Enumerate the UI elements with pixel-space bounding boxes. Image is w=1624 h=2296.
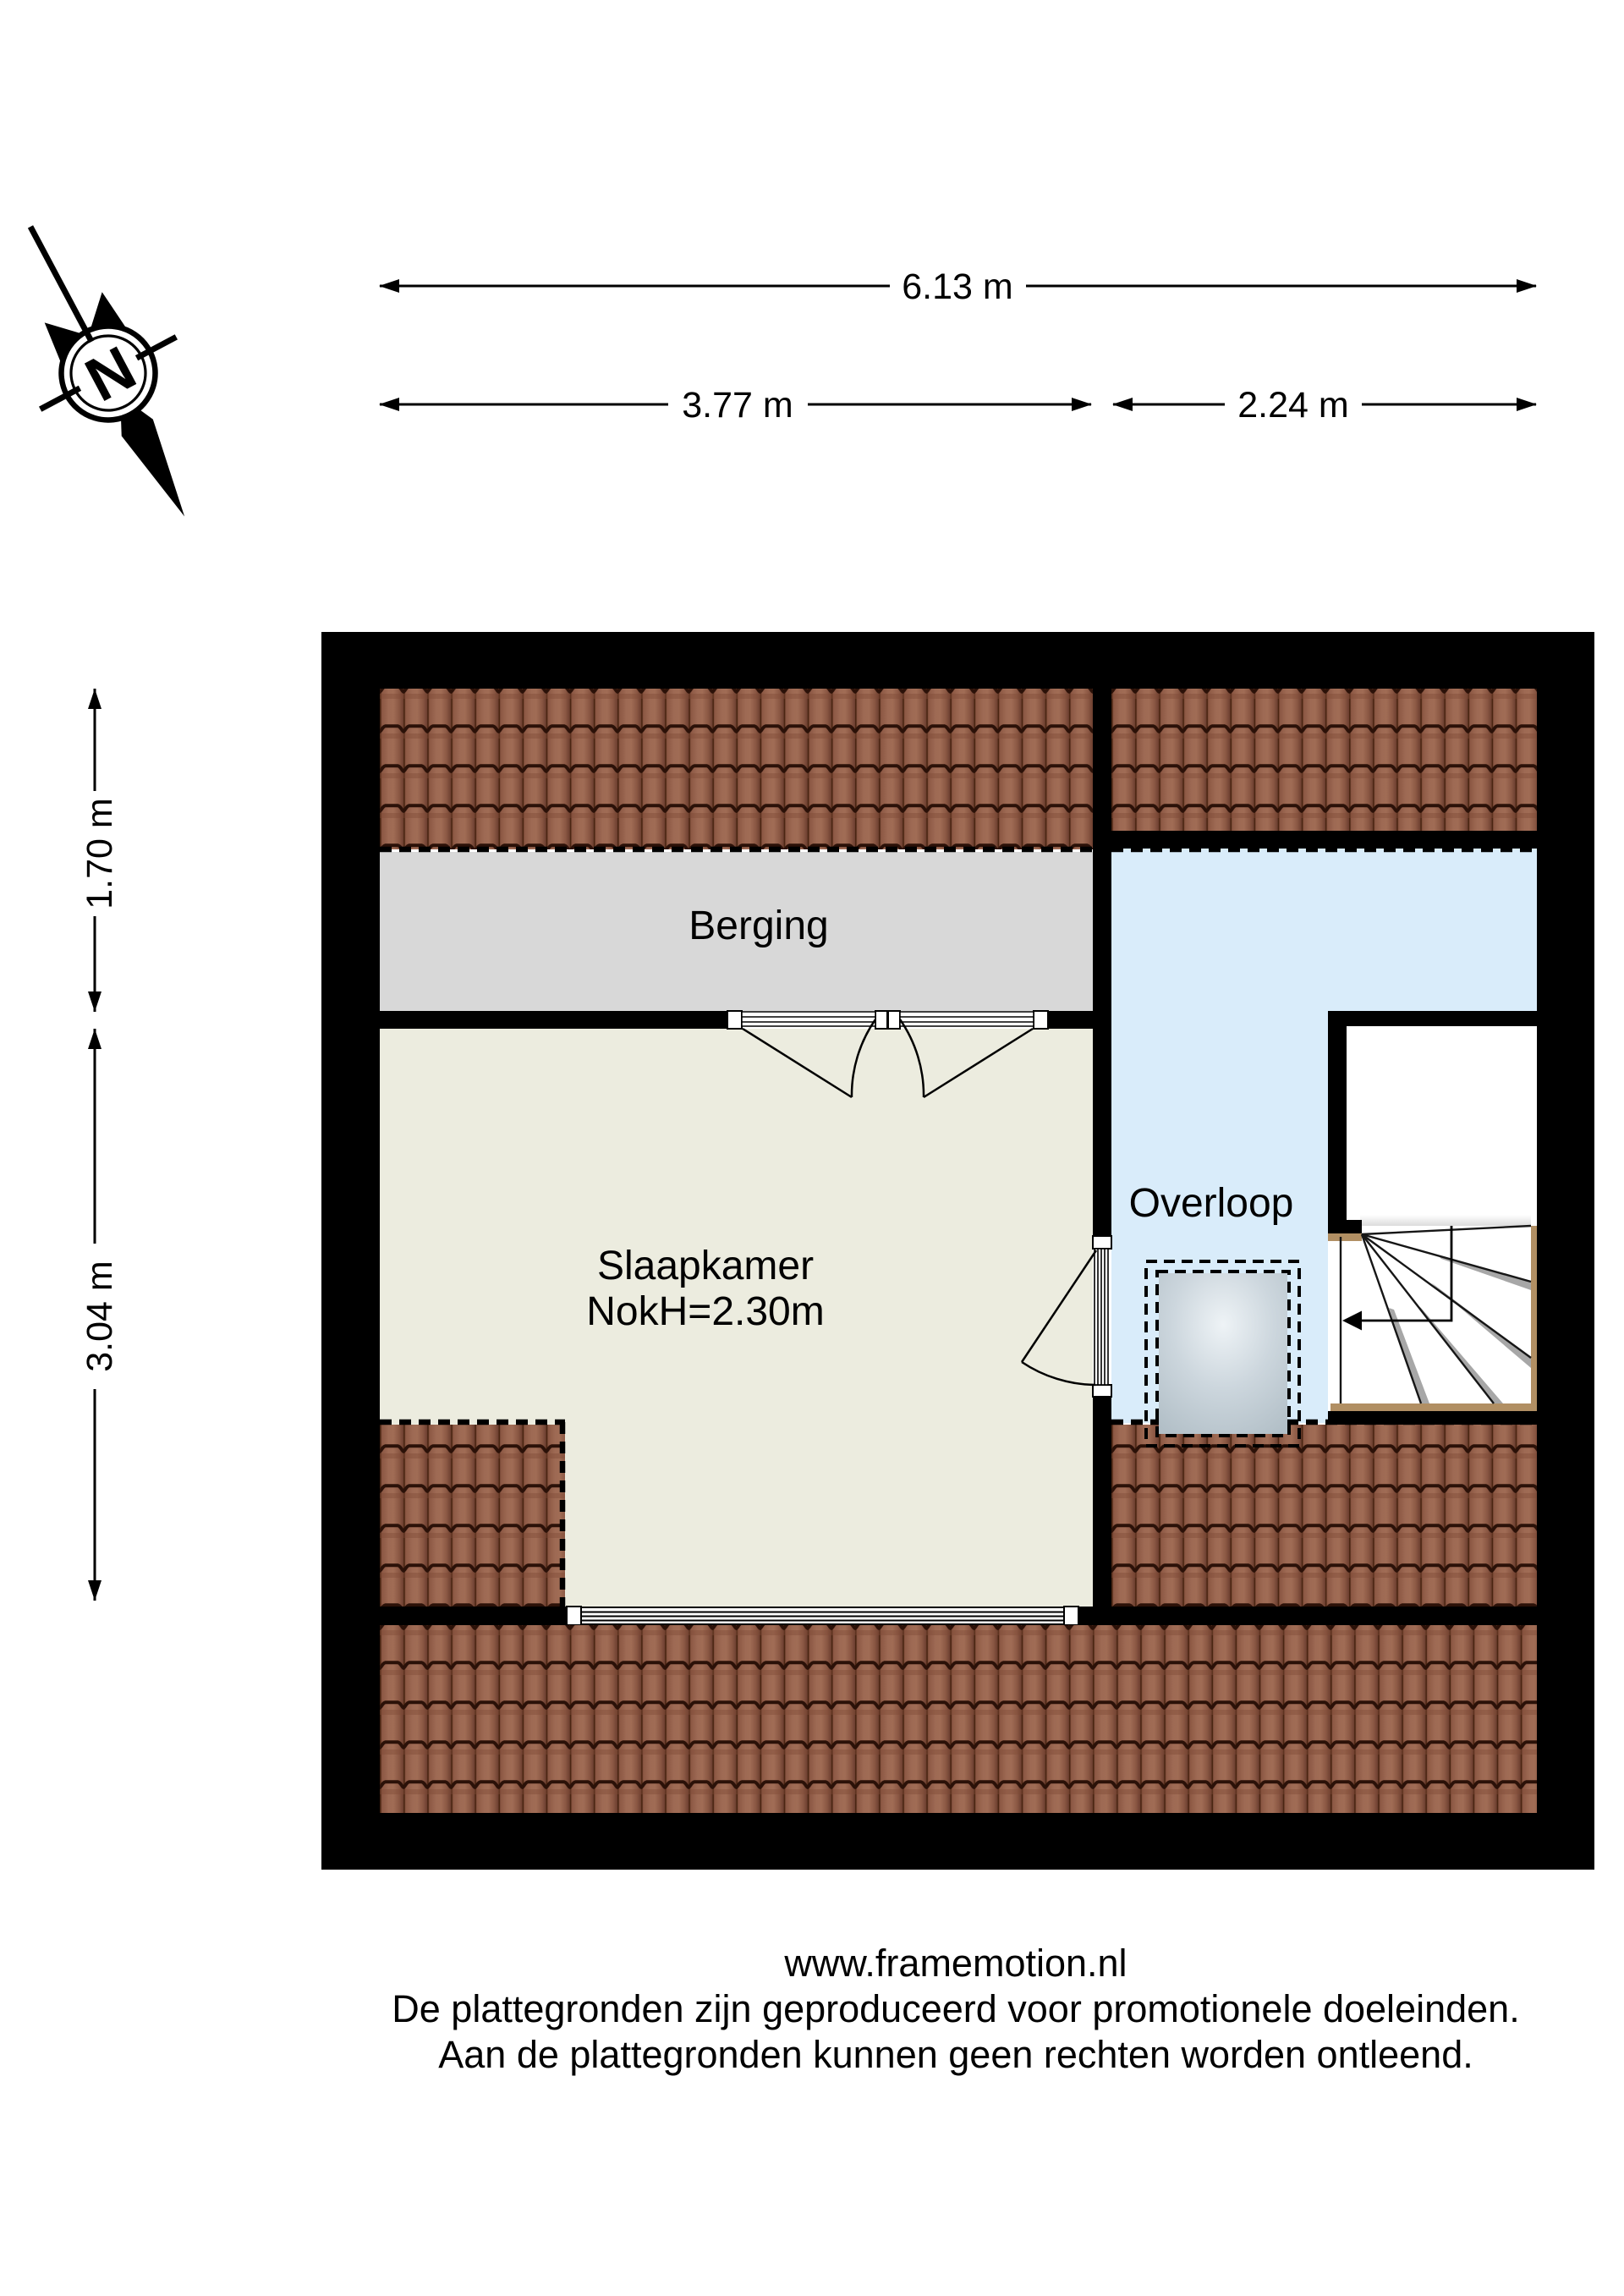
svg-text:3.04 m: 3.04 m (80, 1261, 120, 1371)
svg-text:Overloop: Overloop (1129, 1181, 1294, 1226)
svg-text:Berging: Berging (689, 904, 828, 948)
svg-text:6.13 m: 6.13 m (902, 266, 1012, 307)
svg-text:3.77 m: 3.77 m (682, 385, 793, 426)
svg-text:Aan de plattegronden kunnen ge: Aan de plattegronden kunnen geen rechten… (438, 2033, 1473, 2076)
svg-text:1.70 m: 1.70 m (80, 798, 120, 909)
svg-text:2.24 m: 2.24 m (1237, 385, 1348, 426)
svg-text:www.framemotion.nl: www.framemotion.nl (783, 1942, 1127, 1985)
svg-text:Slaapkamer: Slaapkamer (597, 1244, 814, 1288)
svg-text:NokH=2.30m: NokH=2.30m (586, 1289, 824, 1334)
svg-text:De plattegronden zijn geproduc: De plattegronden zijn geproduceerd voor … (392, 1987, 1519, 2030)
